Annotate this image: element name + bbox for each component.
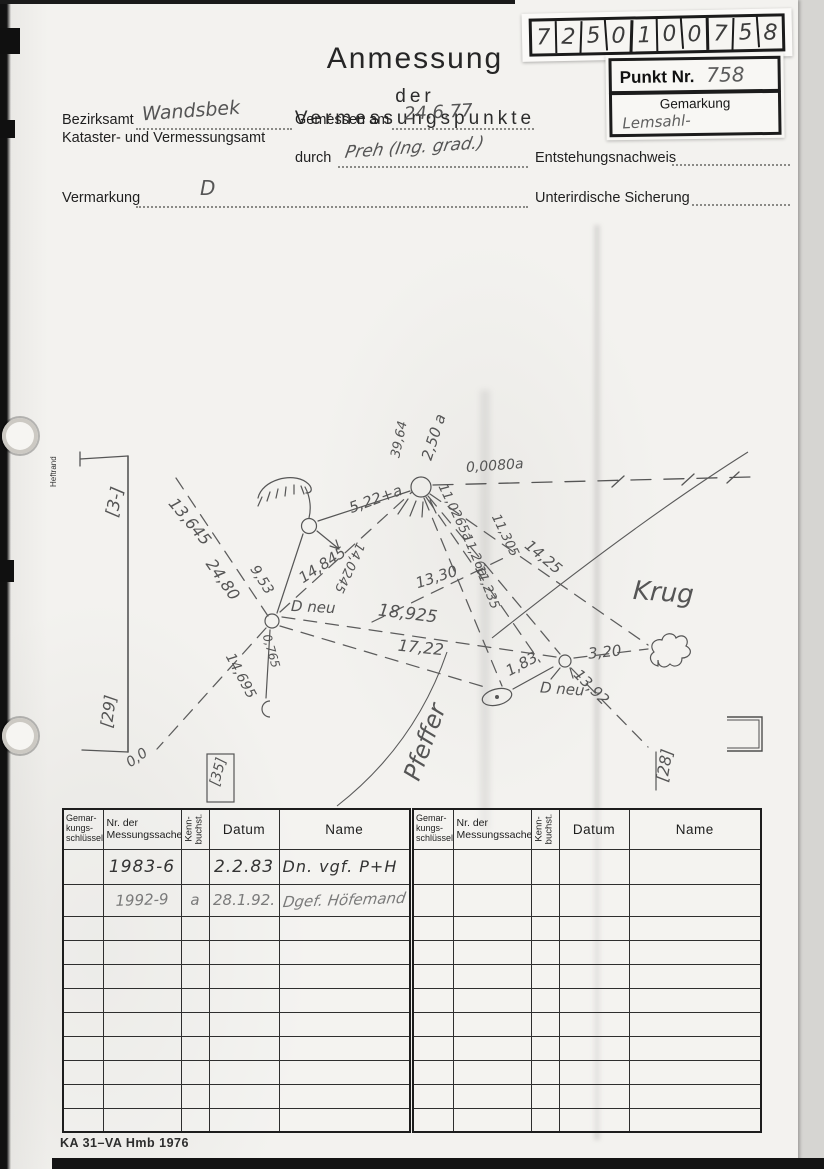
digit-cell: 7 <box>708 17 734 50</box>
table-row <box>413 988 761 1012</box>
cell-datum: 2.2.83 <box>209 849 279 884</box>
vermarkung-value: D <box>200 176 215 200</box>
digit-cell: 0 <box>607 19 634 52</box>
punkt-nr-value: 758 <box>706 62 745 87</box>
scan-edge-blob <box>0 560 14 582</box>
table-row <box>413 1036 761 1060</box>
header-nr-messungssache: Nr. der Messungssache <box>103 809 181 849</box>
table-row: 1983-6 2.2.83 Dn. vgf. P+H <box>63 849 410 884</box>
table-row <box>413 1084 761 1108</box>
measurement-log-table-left: Gemar- kungs- schlüssel Nr. der Messungs… <box>62 808 411 1133</box>
amt-label: Kataster- und Vermessungsamt <box>62 130 265 146</box>
table-header-row: Gemar- kungs- schlüssel Nr. der Messungs… <box>63 809 410 849</box>
punkt-nr-label: Punkt Nr. <box>620 67 695 88</box>
header-kennbuchstabe: Kenn-buchst. <box>531 809 559 849</box>
durch-line <box>338 165 528 168</box>
gemessen-am-label: Gemessen am <box>295 112 389 128</box>
table-row <box>63 964 410 988</box>
cell-nr: 1992-9 <box>102 883 181 918</box>
cell-name: Dgef. Höfemand <box>279 884 410 916</box>
gemarkung-box: Gemarkung Lemsahl- <box>609 91 782 137</box>
digit-cell: 5 <box>733 15 760 49</box>
table-row <box>63 940 410 964</box>
header-line: buchst. <box>195 814 205 845</box>
scan-edge-left <box>0 0 11 1169</box>
point-number-digit-boxes: 7 2 5 0 1 0 0 7 5 8 <box>529 13 786 56</box>
bezirksamt-label: Bezirksamt <box>62 112 134 128</box>
table-row <box>63 916 410 940</box>
header-name: Name <box>629 809 761 849</box>
punch-hole <box>2 418 38 454</box>
gemessen-am-line <box>392 127 534 130</box>
header-line: Messungssache <box>107 829 178 841</box>
table-row <box>63 988 410 1012</box>
header-line: schlüssel <box>66 834 100 844</box>
cell-kenn: a <box>181 884 209 916</box>
scan-edge-blob <box>0 120 15 138</box>
cell-datum: 28.1.92. <box>209 884 279 916</box>
form-title: Anmessung <box>300 42 530 76</box>
scan-edge-bottom <box>52 1158 824 1169</box>
table-row <box>413 1012 761 1036</box>
table-row <box>63 1108 410 1132</box>
table-row <box>413 916 761 940</box>
header-line: buchst. <box>545 814 555 845</box>
table-row <box>413 849 761 884</box>
header-line: schlüssel <box>416 834 450 844</box>
digit-cell: 8 <box>758 16 782 49</box>
cell-gemarkung <box>63 884 103 916</box>
cell-kenn <box>181 849 209 884</box>
header-line: Nr. der <box>457 817 528 829</box>
header-line: Nr. der <box>107 817 178 829</box>
scan-edge-top <box>0 0 515 4</box>
cell-nr: 1983-6 <box>103 849 181 884</box>
unterirdische-sicherung-line <box>692 203 790 206</box>
header-datum: Datum <box>209 809 279 849</box>
cell-gemarkung <box>63 849 103 884</box>
sketch-label-320: 3,20 <box>587 641 622 662</box>
table-row <box>63 1012 410 1036</box>
digit-cell: 1 <box>633 19 659 52</box>
digit-cell: 5 <box>581 18 608 52</box>
punch-hole <box>2 718 38 754</box>
entstehungsnachweis-label: Entstehungsnachweis <box>535 150 676 166</box>
digit-cell: 0 <box>683 18 710 51</box>
scanned-form-page: { "sticker": { "digits": ["7","2","5","0… <box>0 0 824 1169</box>
header-nr-messungssache: Nr. der Messungssache <box>453 809 531 849</box>
entstehungsnachweis-line <box>672 163 790 166</box>
measurement-log-table-right: Gemar- kungs- schlüssel Nr. der Messungs… <box>412 808 762 1133</box>
table-row: 1992-9 a 28.1.92. Dgef. Höfemand <box>63 884 410 916</box>
table-row <box>413 1060 761 1084</box>
table-row <box>63 1060 410 1084</box>
unterirdische-sicherung-label: Unterirdische Sicherung <box>535 190 690 206</box>
header-datum: Datum <box>559 809 629 849</box>
gemessen-am-value: 24.6.77 <box>403 100 473 125</box>
digit-cell: 2 <box>557 20 583 53</box>
header-gemarkungsschluessel: Gemar- kungs- schlüssel <box>63 809 103 849</box>
form-code: KA 31–VA Hmb 1976 <box>60 1136 189 1150</box>
table-row <box>413 884 761 916</box>
table-row <box>63 1084 410 1108</box>
header-line: Messungssache <box>457 829 528 841</box>
header-gemarkungsschluessel: Gemar- kungs- schlüssel <box>413 809 453 849</box>
scan-edge-blob <box>0 28 20 54</box>
header-name: Name <box>279 809 410 849</box>
signature: Dgef. Höfemand <box>281 889 406 911</box>
heftrand-label: Heftrand <box>49 456 58 487</box>
table-row <box>413 964 761 988</box>
digit-cell: 0 <box>657 17 684 51</box>
vermarkung-line <box>136 205 528 208</box>
header-kennbuchstabe: Kenn-buchst. <box>181 809 209 849</box>
sketch-label-dneu-1: D neu <box>291 597 336 617</box>
point-info-box: Punkt Nr. 758 Gemarkung Lemsahl- <box>605 53 784 140</box>
vermarkung-label: Vermarkung <box>62 190 140 206</box>
table-header-row: Gemar- kungs- schlüssel Nr. der Messungs… <box>413 809 761 849</box>
punkt-nr-row: Punkt Nr. 758 <box>608 56 780 94</box>
sketch-label-street-krug: Krug <box>632 576 695 610</box>
table-row <box>63 1036 410 1060</box>
digit-cell: 7 <box>532 21 558 54</box>
cell-name: Dn. vgf. P+H <box>279 849 410 884</box>
durch-label: durch <box>295 150 331 166</box>
table-row <box>413 1108 761 1132</box>
table-row <box>413 940 761 964</box>
